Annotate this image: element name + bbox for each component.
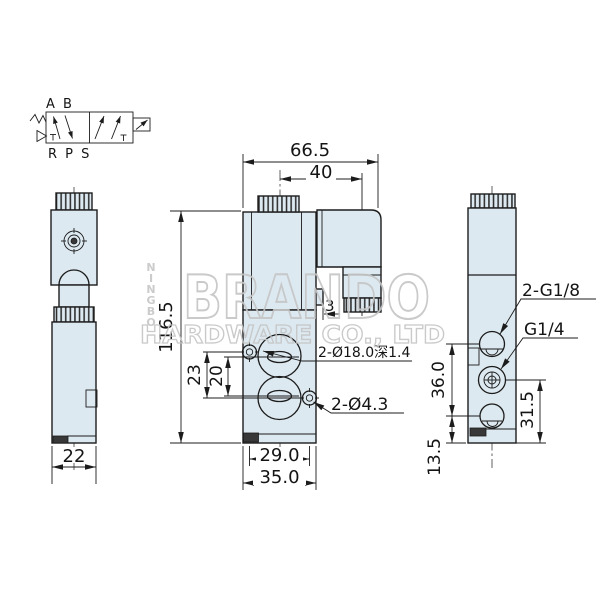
- right-knurled-cap: [471, 194, 515, 208]
- watermark: BRANDO HARDWARE CO., LTD N I N G B O: [140, 261, 445, 349]
- symbol-exhaust-marks: [50, 135, 127, 142]
- output-port-callout-label: G1/4: [524, 320, 565, 340]
- svg-text:O: O: [146, 316, 155, 329]
- dim-width-22-label: 22: [63, 446, 86, 467]
- dim-13-5-label: 13.5: [425, 438, 445, 476]
- symbol-flow-arrows: [54, 116, 121, 140]
- dim-hole-pitch-29: 29.0: [250, 445, 310, 466]
- left-view-base-hatch: [53, 436, 68, 443]
- dim-connector-40: 40: [280, 162, 362, 183]
- front-base-hatch: [244, 433, 259, 442]
- left-view-knurled-cap: [56, 193, 92, 210]
- dim-29-label: 29.0: [259, 445, 299, 466]
- cable-connector-housing: [317, 210, 381, 267]
- symbol-top-port-labels: A B: [46, 97, 74, 112]
- dim-20-label: 20: [207, 365, 227, 387]
- callout-mount-holes: 2-Ø4.3: [314, 395, 405, 415]
- right-view-body: [468, 208, 516, 443]
- dim-bottom-port-13-5: 13.5: [425, 416, 466, 476]
- symbol-solenoid-icon: [133, 118, 150, 131]
- pneumatic-symbol: A B R P S: [30, 97, 150, 162]
- dim-66-5-label: 66.5: [290, 140, 330, 161]
- left-view-neck: [59, 285, 89, 307]
- right-base-hatch: [470, 428, 486, 436]
- side-ports-callout-label: 2-G1/8: [522, 281, 580, 301]
- symbol-bottom-port-labels: R P S: [48, 147, 91, 162]
- valve-technical-drawing: A B R P S: [0, 0, 600, 600]
- dim-36-label: 36.0: [429, 361, 449, 399]
- left-view-solenoid-body: [51, 210, 97, 285]
- symbol-pilot-triangle-icon: [37, 131, 47, 142]
- dim-40-label: 40: [310, 162, 333, 183]
- right-side-view: 2-G1/8 G1/4 36.0 13.5 31.5: [425, 186, 596, 476]
- watermark-company: HARDWARE CO., LTD: [140, 320, 445, 349]
- dim-width-22: 22: [52, 446, 96, 484]
- dim-31-5-label: 31.5: [518, 391, 538, 429]
- left-side-view: 22: [51, 187, 97, 484]
- watermark-vertical: N I N G B O: [146, 261, 155, 329]
- dim-35-label: 35.0: [259, 467, 299, 488]
- mount-holes-callout-label: 2-Ø4.3: [331, 395, 388, 415]
- left-view-knurled-ring: [54, 307, 94, 322]
- left-view-valve-body: [52, 322, 96, 443]
- dim-23-label: 23: [185, 364, 205, 386]
- front-knurled-cap: [258, 196, 299, 212]
- symbol-spring-icon: [30, 115, 46, 124]
